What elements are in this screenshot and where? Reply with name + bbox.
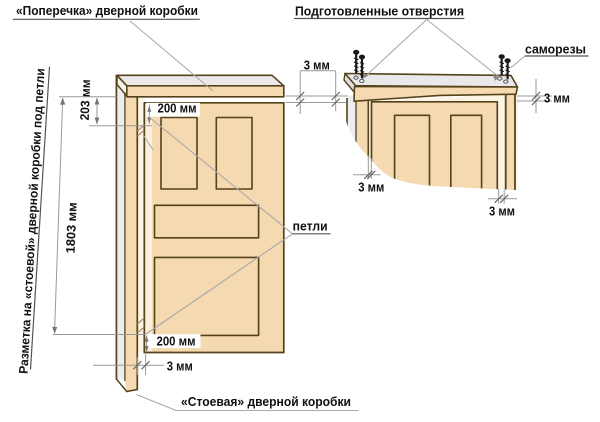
svg-text:200 мм: 200 мм xyxy=(157,335,196,349)
svg-text:203 мм: 203 мм xyxy=(78,79,93,120)
svg-text:«Стоевая» дверной коробки: «Стоевая» дверной коробки xyxy=(181,394,351,409)
svg-text:петли: петли xyxy=(293,219,328,234)
svg-text:3 мм: 3 мм xyxy=(489,205,515,219)
svg-text:1803 мм: 1803 мм xyxy=(64,202,80,254)
svg-text:Подготовленные отверстия: Подготовленные отверстия xyxy=(295,4,464,19)
svg-text:3 мм: 3 мм xyxy=(544,92,570,106)
svg-text:саморезы: саморезы xyxy=(525,42,586,57)
svg-text:3 мм: 3 мм xyxy=(304,59,330,73)
svg-text:3 мм: 3 мм xyxy=(358,181,384,195)
svg-text:200 мм: 200 мм xyxy=(158,102,197,116)
svg-text:«Поперечка» дверной коробки: «Поперечка» дверной коробки xyxy=(16,3,198,18)
svg-text:3 мм: 3 мм xyxy=(167,360,193,374)
